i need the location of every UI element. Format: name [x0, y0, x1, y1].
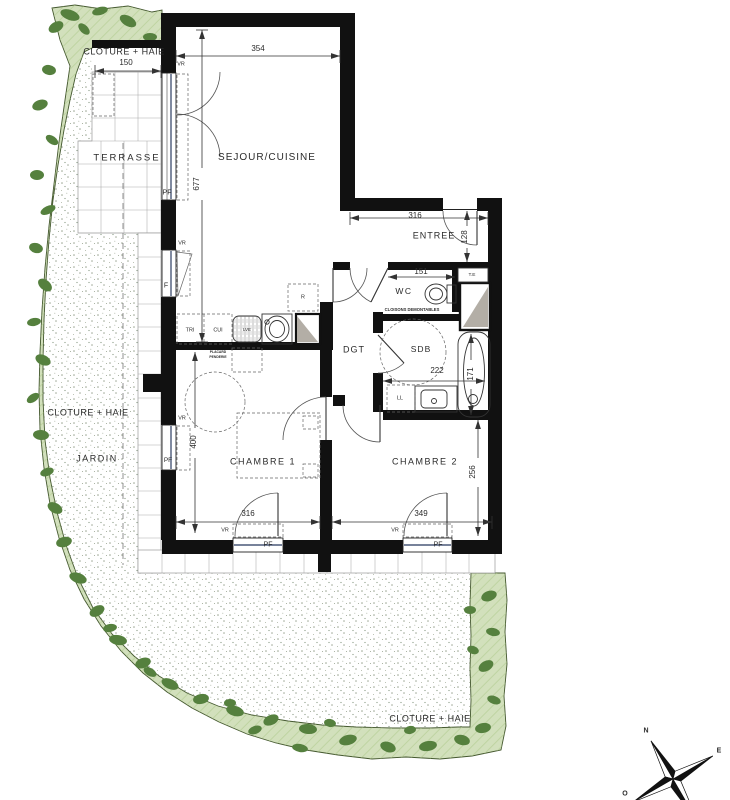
- cloture-haie-label-left: CLOTURE + HAIE: [47, 409, 128, 418]
- terrasse-width-dim: 150: [119, 59, 132, 67]
- pf-label-chambre1-south: PF: [264, 542, 273, 549]
- chambre1-depth-dim: 400: [190, 435, 198, 448]
- compass-west-label: O: [622, 791, 627, 798]
- cui-label: CUI: [213, 327, 222, 332]
- sdb-width-dim: 222: [430, 367, 443, 375]
- chambre2-label: CHAMBRE 2: [392, 458, 458, 467]
- vr-label-sejour-window: VR: [177, 61, 185, 66]
- sdb-label: SDB: [411, 345, 431, 354]
- chambre1-width-dim: 316: [241, 510, 254, 518]
- vr-label-kitchen-window: VR: [178, 240, 186, 245]
- cloisons-demontables-label: CLOISONS DEMONTABLES: [385, 308, 440, 312]
- floor-plan-drawing: [0, 0, 730, 800]
- sejour-cuisine-label: SEJOUR/CUISINE: [218, 153, 316, 163]
- vr-label-chambre2-south: VR: [391, 527, 399, 532]
- terrasse-label: TERRASSE: [93, 153, 160, 163]
- placard-label-line1: PLACARD: [210, 350, 226, 353]
- entree-label: ENTREE: [413, 232, 456, 241]
- wc-width-dim: 151: [414, 268, 427, 276]
- pf-label-sejour-window: PF: [163, 190, 172, 197]
- fridge-label: R: [301, 294, 305, 299]
- wc-label: WC: [395, 287, 412, 296]
- sejour-depth-dim: 677: [193, 177, 201, 190]
- entree-width-dim: 316: [408, 212, 421, 220]
- vr-label-chambre1-south: VR: [221, 527, 229, 532]
- tri-label: TRI: [186, 327, 195, 332]
- placard-label-line2: PENDERIE: [209, 355, 226, 358]
- f-label-kitchen-window: F: [164, 283, 168, 290]
- pf-label-chambre2-south: PF: [434, 542, 443, 549]
- chambre2-depth-dim: 256: [469, 465, 477, 478]
- dgt-label: DGT: [343, 346, 365, 355]
- jardin-label: JARDIN: [76, 455, 118, 464]
- compass-east-label: E: [717, 748, 722, 755]
- te-label: T.E: [469, 273, 476, 278]
- bath-length-dim: 171: [467, 367, 475, 380]
- entree-depth-dim: 128: [461, 230, 469, 243]
- ll-label: LL: [397, 395, 403, 400]
- sejour-width-dim: 354: [251, 45, 264, 53]
- kitchen-sink-icon: [262, 314, 292, 344]
- chambre1-label: CHAMBRE 1: [230, 458, 296, 467]
- compass-rose-icon: [611, 718, 730, 800]
- compass-north-label: N: [643, 728, 648, 735]
- toilet-icon: [425, 284, 447, 304]
- vr-label-chambre1-west: VR: [178, 415, 186, 420]
- cloture-haie-label-top: CLOTURE + HAIE: [83, 48, 164, 57]
- cloture-haie-label-bottom: CLOTURE + HAIE: [389, 715, 470, 724]
- windows: [162, 73, 477, 552]
- lve-label: LVE: [243, 328, 251, 332]
- floor-plan: CLOTURE + HAIE 150 TERRASSE VR PF SEJOUR…: [0, 0, 730, 800]
- chambre2-width-dim: 349: [414, 510, 427, 518]
- pf-label-chambre1-west: PF: [164, 458, 172, 465]
